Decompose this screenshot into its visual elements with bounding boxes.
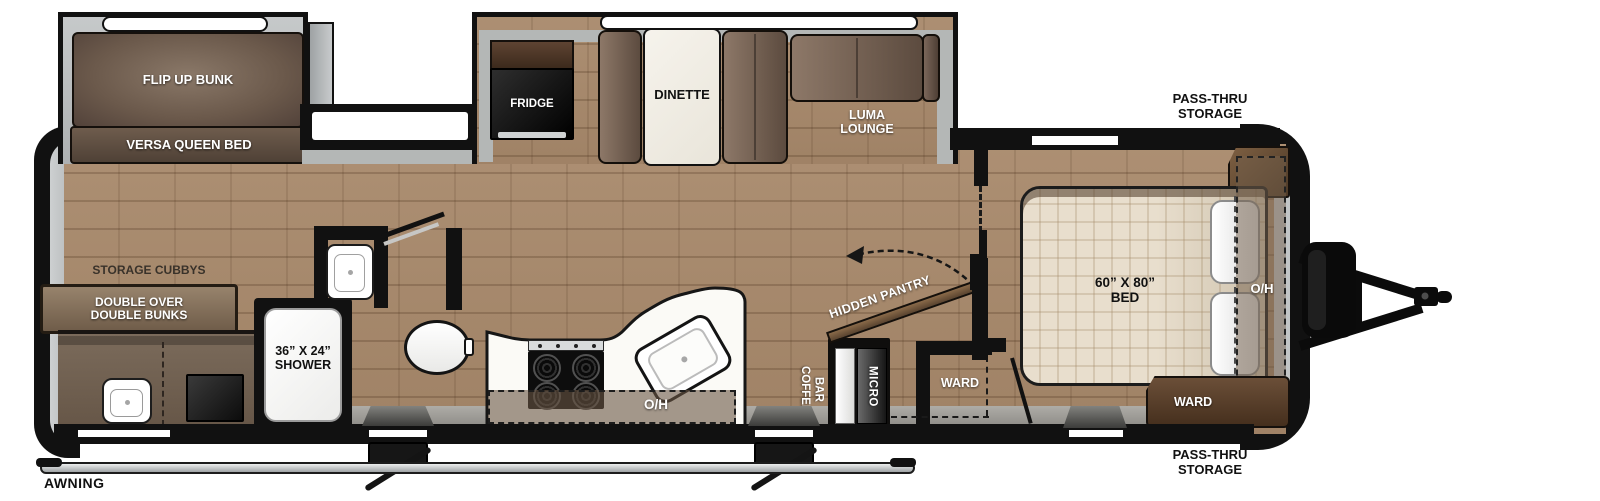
rear-counter-divider	[162, 342, 164, 426]
entry-threshold	[367, 428, 429, 439]
entry-threshold	[753, 428, 815, 439]
arrow-head-icon	[846, 246, 864, 264]
hitch-icon	[1298, 226, 1458, 378]
flip-up-bunk-label: FLIP UP BUNK	[143, 73, 234, 88]
versa-queen-bed: VERSA QUEEN BED	[70, 126, 308, 164]
fridge-vent	[498, 132, 566, 138]
bedroom-step	[1063, 406, 1127, 428]
rear-sink	[102, 378, 152, 424]
entry-step-well	[362, 406, 434, 426]
double-bunks-label-line1: DOUBLE OVER	[95, 296, 183, 309]
bath-wall-stub	[446, 228, 462, 310]
coupler-ball	[1436, 291, 1452, 303]
pass-thru-bottom-line1: PASS-THRU	[1150, 448, 1270, 463]
awning-label: AWNING	[44, 476, 114, 492]
bedroom-ward-label: WARD	[1174, 395, 1212, 409]
bedroom-pocket-door	[979, 186, 982, 232]
bath-sink	[326, 244, 374, 300]
shower-label-line1: 36” X 24”	[256, 344, 350, 358]
floorplan-canvas: FLIP UP BUNK VERSA QUEEN BED STORAGE CUB…	[0, 0, 1600, 501]
luma-lounge-sofa	[790, 34, 924, 102]
rear-counter-backsplash	[58, 336, 260, 345]
vanity-wall-right	[374, 226, 388, 308]
dinette-label: DINETTE	[647, 88, 717, 103]
mid-window	[312, 112, 468, 140]
bedroom-ward: WARD	[1146, 376, 1290, 428]
bunk-slide-window	[102, 16, 268, 32]
coupler-pin	[1422, 293, 1429, 300]
stove-knob	[538, 344, 542, 348]
bed-label-line2: BED	[1070, 290, 1180, 305]
stove-knob-strip	[528, 340, 604, 351]
versa-queen-bed-label: VERSA QUEEN BED	[126, 138, 251, 153]
stove-knob	[574, 344, 578, 348]
stove-knob	[592, 344, 596, 348]
bed-label-line1: 60” X 80”	[1070, 275, 1180, 290]
pass-thru-top-line2: STORAGE	[1150, 107, 1270, 122]
awning-end-cap-right	[890, 458, 916, 467]
pantry-door-swing-arc	[842, 240, 982, 298]
pass-thru-top-line1: PASS-THRU	[1150, 92, 1270, 107]
rear-sink-drain	[125, 400, 130, 405]
awning-end-cap-left	[36, 458, 62, 467]
bedroom-wall-stub	[984, 338, 1006, 352]
bedroom-step-threshold	[1067, 428, 1125, 439]
double-over-double-bunks: DOUBLE OVER DOUBLE BUNKS	[40, 284, 238, 334]
dinette-bench-right	[722, 30, 788, 164]
sofa-seam	[856, 38, 858, 98]
storage-cubbys-label: STORAGE CUBBYS	[86, 264, 212, 277]
luma-label-line1: LUMA	[812, 108, 922, 122]
kitchen-overhead-label: O/H	[636, 397, 676, 412]
propane-tank-highlight	[1308, 250, 1326, 330]
bedroom-overhead-label: O/H	[1244, 282, 1280, 297]
luma-label-line2: LOUNGE	[812, 122, 922, 136]
ward-closet-dash-bottom	[891, 416, 989, 418]
bedroom-front-window	[1030, 134, 1120, 147]
double-bunks-label-line2: DOUBLE BUNKS	[91, 309, 188, 322]
coffee-bar-counter	[835, 348, 855, 424]
kitchen-overhead-cabinet	[488, 390, 736, 424]
toilet	[404, 320, 470, 375]
flip-up-bunk: FLIP UP BUNK	[72, 32, 304, 128]
toilet-handle	[464, 338, 474, 356]
fridge-label: FRIDGE	[510, 98, 553, 111]
stove-burner	[533, 354, 561, 382]
stove-knob	[556, 344, 560, 348]
bath-sink-drain	[348, 270, 353, 275]
stove-burner	[572, 354, 600, 382]
pass-thru-storage-label-top: PASS-THRU STORAGE	[1150, 92, 1270, 121]
awning-bar	[40, 462, 915, 474]
rear-window	[76, 428, 172, 439]
dinette-bench-left	[598, 30, 642, 164]
bench-seam	[754, 34, 756, 160]
luma-lounge-label: LUMA LOUNGE	[812, 108, 922, 136]
entry-step-well	[748, 406, 820, 426]
shower-label: 36” X 24” SHOWER	[256, 344, 350, 372]
micro-label: MICRO	[866, 366, 879, 407]
luma-lounge-arm	[922, 34, 940, 102]
microwave: MICRO	[857, 348, 887, 424]
mid-window-sill	[302, 150, 478, 164]
bed-label: 60” X 80” BED	[1070, 275, 1180, 305]
fridge-cabinet	[490, 40, 574, 70]
hall-ward-label: WARD	[930, 376, 990, 390]
fridge: FRIDGE	[490, 68, 574, 140]
shower-label-line2: SHOWER	[256, 358, 350, 372]
pass-thru-storage-label-bottom: PASS-THRU STORAGE	[1150, 448, 1270, 477]
rear-appliance	[186, 374, 244, 422]
pass-thru-bottom-line2: STORAGE	[1150, 463, 1270, 478]
